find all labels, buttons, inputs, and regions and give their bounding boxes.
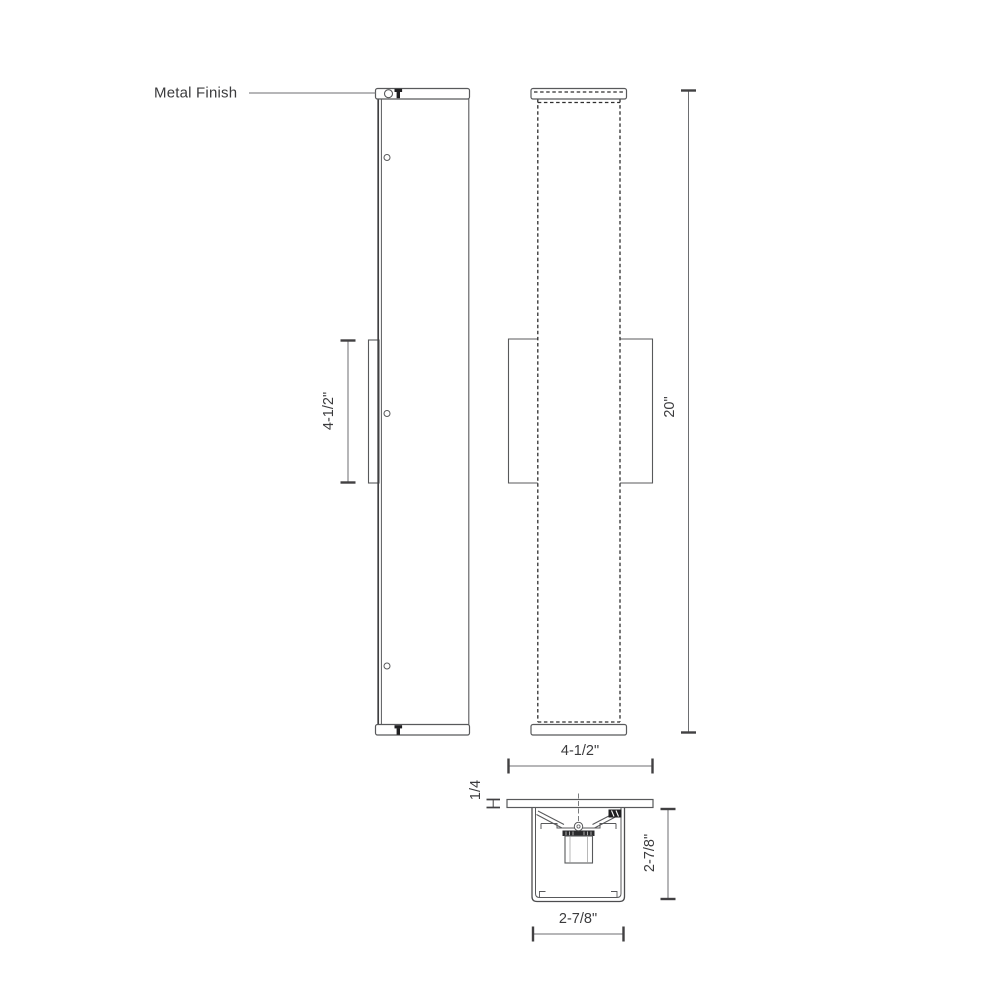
dim-label-section-depth: 2-7/8" [642, 834, 658, 872]
dim-section-width [533, 927, 624, 942]
dim-section-depth [661, 809, 676, 899]
center-screw-icon [574, 822, 582, 830]
front-backplate-right [620, 339, 653, 483]
wire-block-icon [609, 810, 622, 818]
dim-label-overall-width: 4-1/2" [561, 743, 599, 759]
dim-canopy-thickness [487, 800, 501, 808]
section-view [507, 794, 653, 902]
dim-overall-width [509, 759, 653, 774]
front-top-cap [531, 89, 627, 100]
dim-label-section-width: 2-7/8" [559, 911, 597, 927]
screw-hole-icon [384, 663, 390, 669]
dim-label-canopy-thickness: 1/4 [468, 780, 484, 800]
metal-finish-label: Metal Finish [154, 85, 237, 102]
fixture-dimension-drawing: Metal Finish 4-1/2" 20" 4-1/2" 1/4 2-7/8… [0, 0, 1000, 1000]
led-module-box [565, 836, 593, 863]
screw-hole-icon [384, 411, 390, 417]
led-strip-icon [563, 831, 595, 837]
screw-head-icon [385, 90, 393, 98]
section-canopy-plate [507, 800, 653, 808]
dim-backplate-height [341, 341, 356, 483]
dim-label-backplate-height: 4-1/2" [321, 392, 337, 430]
line-art [0, 0, 1000, 1000]
front-bottom-cap [531, 725, 627, 736]
screw-hole-icon [384, 155, 390, 161]
dim-label-overall-height: 20" [662, 396, 678, 417]
section-boss-left [540, 892, 546, 898]
front-view [509, 89, 653, 736]
side-bottom-cap [376, 725, 470, 736]
side-view [369, 89, 470, 736]
front-backplate-left [509, 339, 538, 483]
section-boss-right [611, 892, 617, 898]
dim-overall-height [681, 91, 696, 733]
